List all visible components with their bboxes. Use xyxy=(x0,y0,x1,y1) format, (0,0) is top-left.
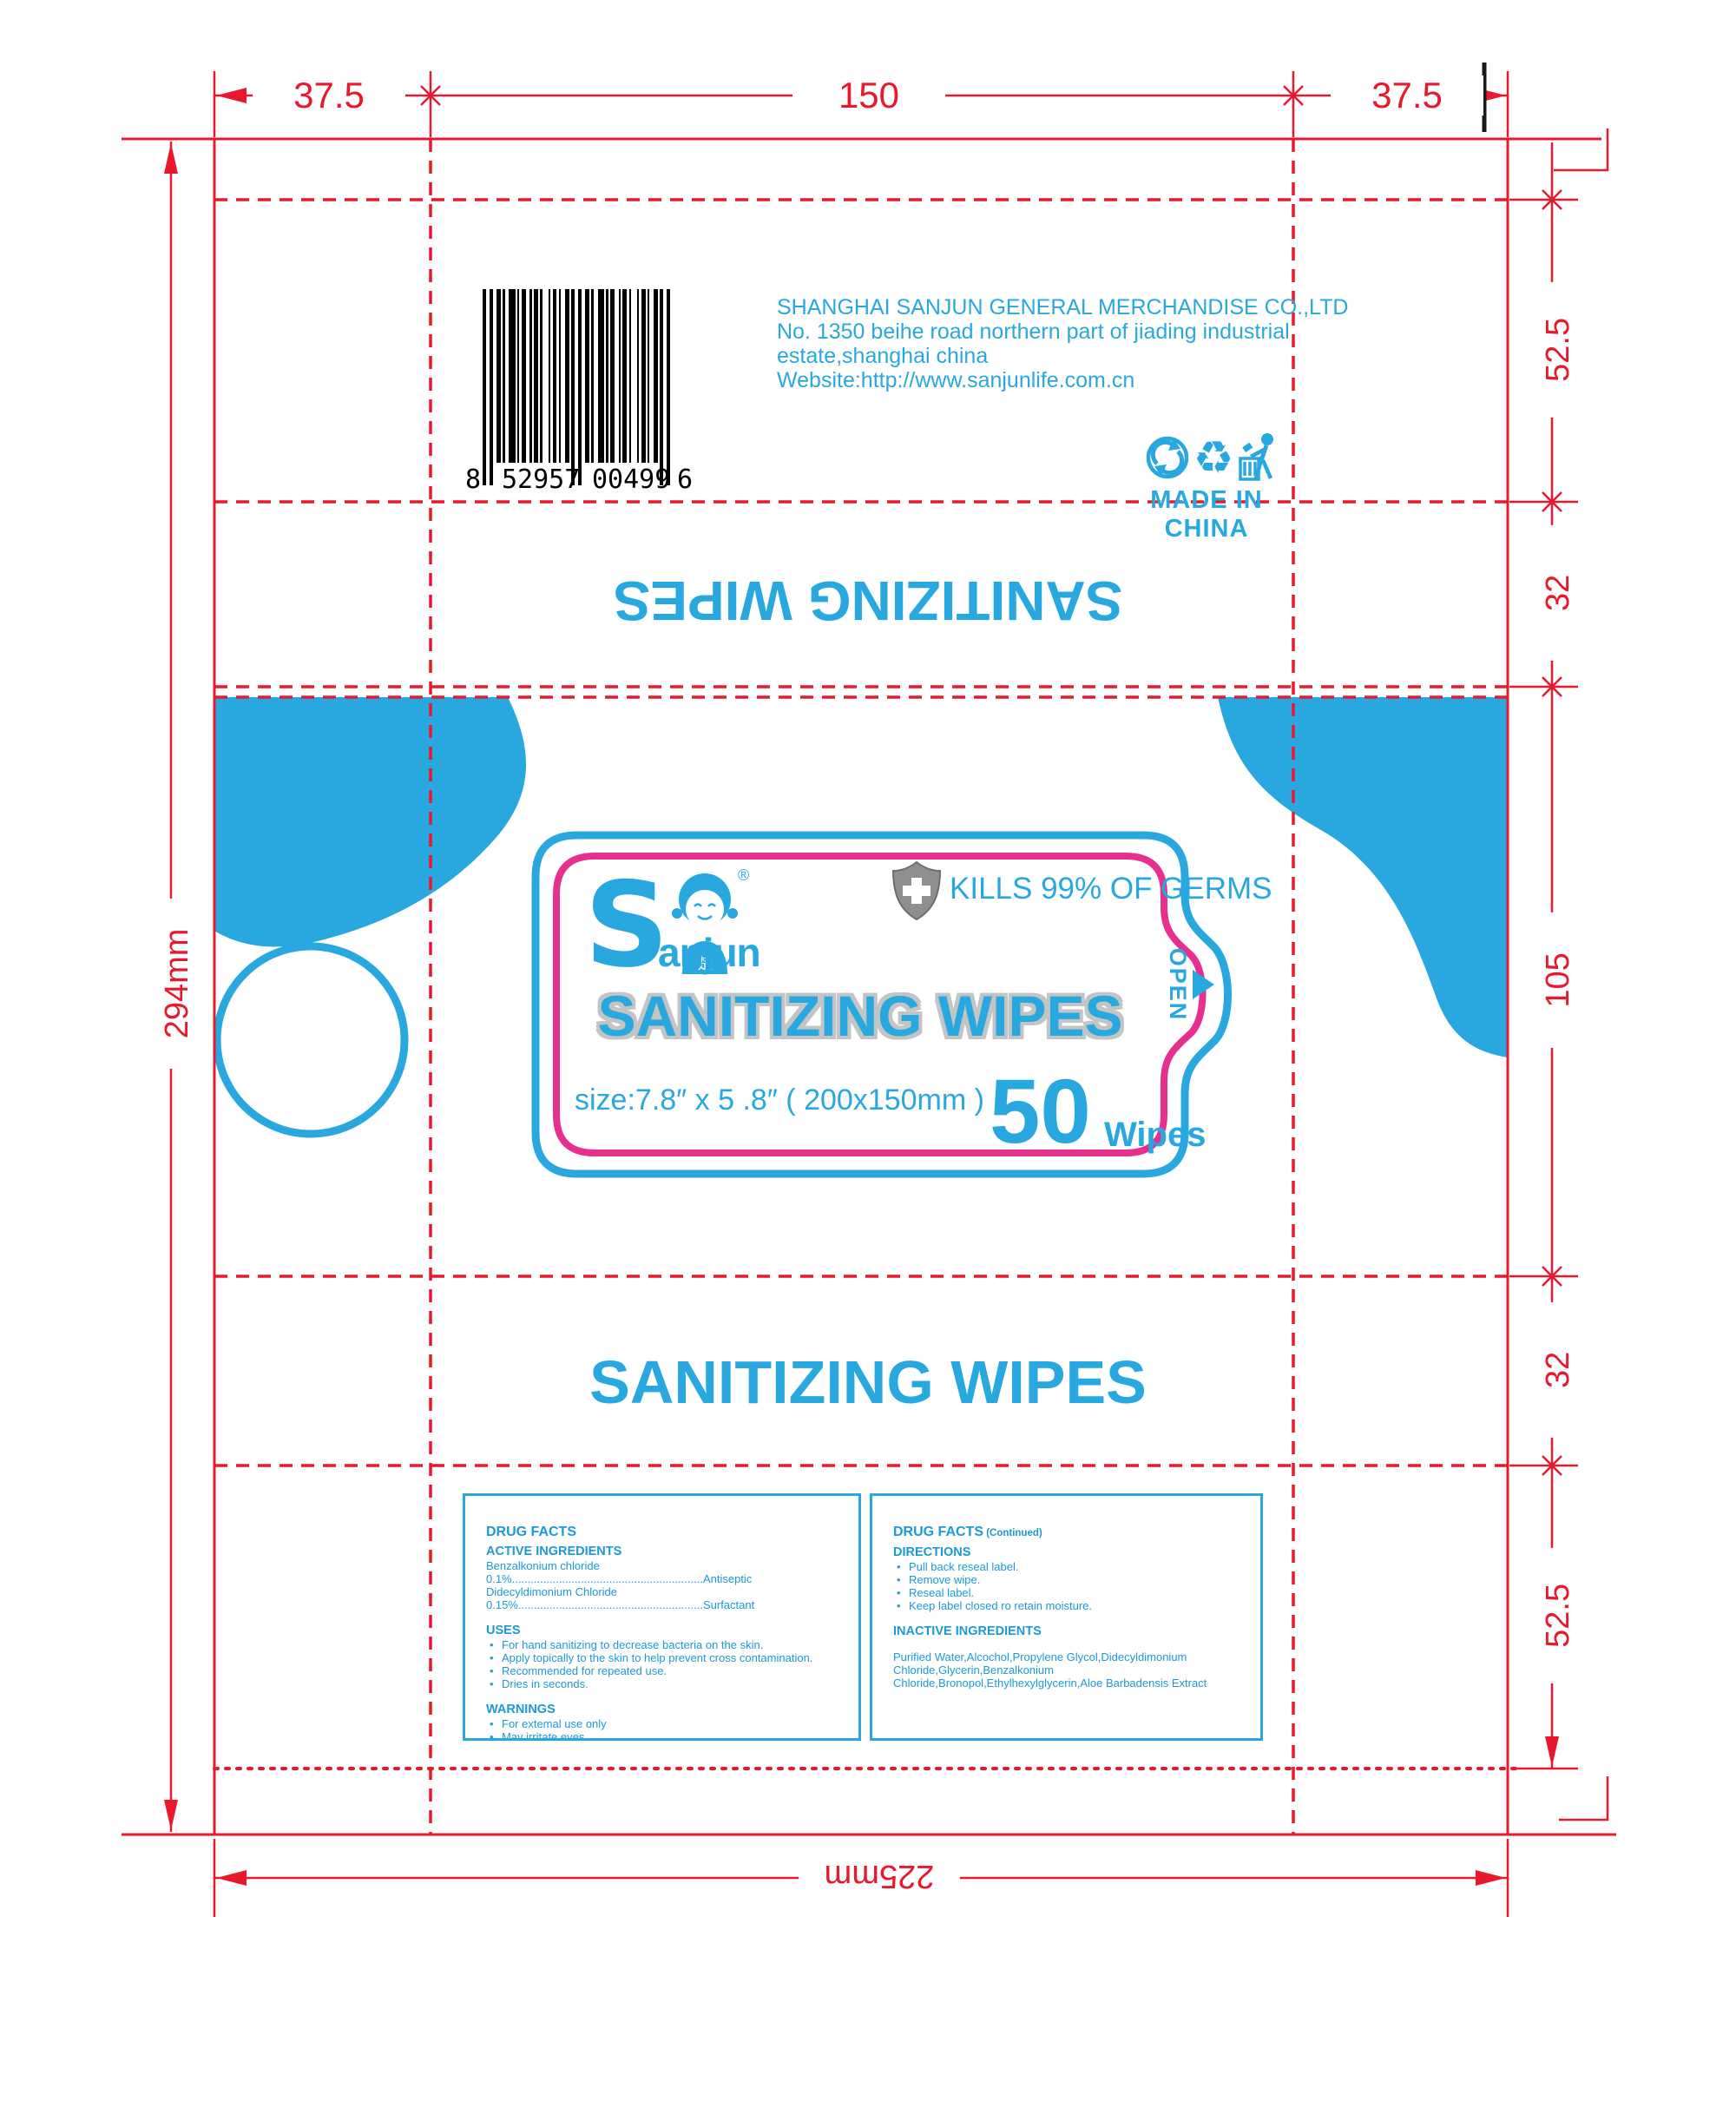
dim-top-center: 150 xyxy=(792,76,945,115)
bottom-panel-title: SANITIZING WIPES xyxy=(538,1347,1198,1417)
drug-facts-bullet: For hand sanitizing to decrease bacteria… xyxy=(486,1638,841,1651)
company-address-1: No. 1350 beihe road northern part of jia… xyxy=(777,319,1348,344)
circle-outline xyxy=(217,946,404,1134)
registered-mark: ® xyxy=(738,866,749,885)
brand-s-glyph: S xyxy=(584,857,668,993)
made-in-china-label: MADE IN CHINA xyxy=(1120,486,1293,543)
barcode-digit-group: 52957 xyxy=(502,464,580,495)
drug-facts-bullet: Keep label closed ro retain moisture. xyxy=(893,1599,1243,1612)
flap-title-inverted: SANITIZING WIPES xyxy=(521,569,1215,633)
drug-facts-text: Purified Water,Alcochol,Propylene Glycol… xyxy=(893,1650,1243,1690)
recycle-icon: ♻ xyxy=(1193,432,1234,484)
tidyman-icon xyxy=(1240,433,1273,479)
drug-facts-bullet: Dries in seconds. xyxy=(486,1677,841,1690)
drug-facts-bullet: Pull back reseal label. xyxy=(893,1560,1243,1573)
company-name: SHANGHAI SANJUN GENERAL MERCHANDISE CO.,… xyxy=(777,295,1348,319)
drug-facts-panel-left: DRUG FACTSACTIVE INGREDIENTSBenzalkonium… xyxy=(463,1493,861,1741)
brand-wordmark: anjun xyxy=(658,932,760,972)
drug-facts-text: 0.15%...................................… xyxy=(486,1598,841,1611)
dim-top-right: 37.5 xyxy=(1331,76,1483,115)
drug-facts-subheading: WARNINGS xyxy=(486,1702,841,1717)
drug-facts-bullet: For extemal use only xyxy=(486,1717,841,1730)
barcode-bars xyxy=(483,289,674,485)
drug-facts-subheading: INACTIVE INGREDIENTS xyxy=(893,1624,1243,1639)
company-website: Website:http://www.sanjunlife.com.cn xyxy=(777,368,1348,392)
drug-facts-text: Didecyldimonium Chloride xyxy=(486,1585,841,1598)
dim-left-height: 294mm xyxy=(160,899,196,1069)
dim-right-4: 32 xyxy=(1541,1302,1577,1438)
barcode-digit-group: 6 xyxy=(677,464,693,495)
recycling-icons: ♻ xyxy=(1148,432,1273,484)
wipe-count: 50 xyxy=(990,1066,1091,1157)
company-info: SHANGHAI SANJUN GENERAL MERCHANDISE CO.,… xyxy=(777,295,1348,392)
company-address-2: estate,shanghai china xyxy=(777,344,1348,368)
front-panel-blobs xyxy=(214,697,1508,1134)
dim-bottom-width: 225mm xyxy=(799,1857,960,1894)
drug-facts-bullet: Recommended for repeated use. xyxy=(486,1664,841,1677)
drug-facts-text: 0.1%....................................… xyxy=(486,1572,841,1585)
dieline-canvas: S 楚 ♻ xyxy=(0,0,1736,2108)
drug-facts-panel-right: DRUG FACTS (Continued)DIRECTIONSPull bac… xyxy=(870,1493,1263,1741)
drug-facts-subheading: DIRECTIONS xyxy=(893,1545,1243,1560)
open-label: OPEN xyxy=(1161,941,1195,1028)
drug-facts-text: Benzalkonium chloride xyxy=(486,1559,841,1572)
drug-facts-subheading: USES xyxy=(486,1623,841,1638)
front-title: SANITIZING WIPES xyxy=(544,983,1176,1049)
size-text: size:7.8″ x 5 .8″ ( 200x150mm ) xyxy=(575,1084,984,1117)
drug-facts-bullet: Remove wipe. xyxy=(893,1573,1243,1586)
drug-facts-subheading: ACTIVE INGREDIENTS xyxy=(486,1544,841,1559)
barcode-digit-group: 8 xyxy=(465,464,481,495)
barcode-digit-group: 00499 xyxy=(592,464,670,495)
dim-right-3: 105 xyxy=(1541,912,1577,1048)
dim-right-1: 52.5 xyxy=(1541,282,1577,418)
drug-facts-heading: DRUG FACTS (Continued) xyxy=(893,1524,1243,1542)
drug-facts-bullet: Apply topically to the skin to help prev… xyxy=(486,1651,841,1664)
wipe-count-unit: Wipes xyxy=(1104,1116,1206,1155)
shield-icon xyxy=(893,862,940,919)
drug-facts-heading: DRUG FACTS xyxy=(486,1524,841,1541)
left-blob xyxy=(214,697,526,947)
drug-facts-bullet: May irritate eyes xyxy=(486,1730,841,1741)
dim-right-5: 52.5 xyxy=(1541,1548,1577,1683)
green-dot-icon xyxy=(1148,438,1187,477)
barcode: 8 52957 00499 6 xyxy=(483,289,684,497)
kills-germs-claim: KILLS 99% OF GERMS xyxy=(950,872,1272,906)
dim-right-2: 32 xyxy=(1541,525,1577,661)
drug-facts-bullet: Reseal label. xyxy=(893,1586,1243,1599)
dim-top-left: 37.5 xyxy=(253,76,405,115)
